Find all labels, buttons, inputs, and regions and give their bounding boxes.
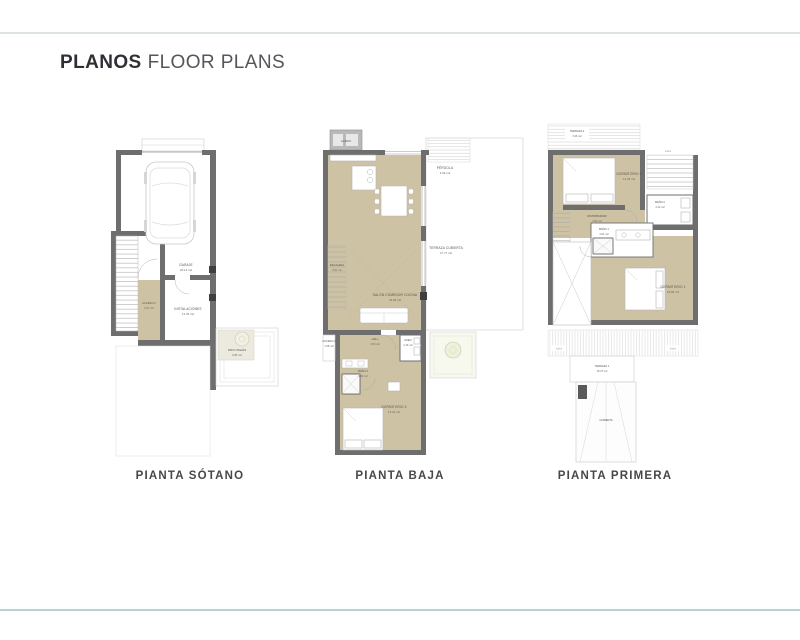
room-area-distribuidor: 4.59 m2 (592, 219, 602, 223)
room-name-garaje: GARAJE (179, 263, 193, 267)
room-name-dormitorio3: DORMITORIO 3 (381, 405, 406, 409)
chimney-icon (578, 385, 587, 399)
bed-icon (563, 158, 615, 204)
shower-icon (342, 374, 360, 394)
room-name-distribuidor: DISTRIBUIDOR (587, 214, 606, 218)
pergola-hatch (428, 138, 470, 162)
cubierta-roof (576, 382, 636, 462)
door-arc-icon (175, 280, 189, 294)
room-area-pergola: 4.09 m2 (440, 171, 451, 175)
driveway-ramp (142, 139, 204, 151)
pillar (420, 292, 427, 300)
toilet-icon (414, 347, 420, 355)
floorplan-baja: LAVADO PÉRGOLA 4.09 m2 ESCALERA 9.51 m2 … (318, 126, 533, 471)
sofa-icon (360, 308, 408, 323)
nightstand-icon (388, 382, 400, 391)
room-name-hall: HALL (372, 337, 379, 341)
stairs-annotation: stairs (556, 347, 563, 351)
pillar (209, 294, 216, 301)
room-area-bano1: 3.64 m2 (599, 232, 609, 236)
room-name-lavado: LAVADO (341, 139, 352, 143)
floorplan-sotano: GARAJE 30.14 m2 ACCESO 2 6.67 m2 INSTALA… (110, 138, 285, 478)
toilet-icon (681, 212, 690, 222)
room-acceso2 (138, 280, 160, 340)
room-area-garaje: 30.14 m2 (180, 268, 192, 272)
top-rule (0, 32, 800, 34)
room-area-patio-ingles: 8.85 m2 (232, 353, 242, 357)
page-title-regular: FLOOR PLANS (148, 52, 285, 73)
room-area-hall: 3.59 m2 (370, 342, 380, 346)
room-name-salon: SALÓN COMEDOR COCINA (373, 292, 418, 297)
exterior-stairs-icon (647, 155, 693, 189)
room-name-acceso1: ACCESO 1 (322, 339, 336, 343)
car-icon (144, 162, 196, 244)
room-area-bano2: 4.13 m2 (655, 205, 665, 209)
caption-pianta-sotano: PIANTA SÓTANO (90, 470, 290, 482)
room-name-terraza2: TERRAZA 2 (570, 129, 585, 133)
stairs-icon (116, 236, 138, 331)
room-bano2 (647, 195, 693, 225)
garden-outline (116, 346, 210, 456)
room-area-terraza1: 15.37 m2 (597, 369, 608, 373)
door-arc-icon (138, 259, 157, 278)
room-area-aseo: 2.16 m2 (403, 343, 413, 347)
room-name-instalaciones: INSTALACIONES (174, 307, 201, 311)
room-name-aseo: ASEO (404, 338, 411, 342)
room-area-dormitorio2: 14.28 m2 (623, 177, 635, 181)
sink-icon (414, 338, 420, 344)
kitchen-counter-icon (330, 155, 376, 161)
terraza2-hatch (548, 124, 640, 150)
room-area-bano3: 3.09 m2 (358, 374, 368, 378)
room-name-cubierta: CUBIERTA (599, 418, 613, 422)
tree-icon (235, 332, 249, 346)
pillar (209, 266, 216, 273)
shower-icon (593, 238, 613, 254)
stairs-icon (328, 245, 346, 309)
room-area-terraza-cubierta: 17.77 m2 (440, 251, 452, 255)
room-area-dormitorio1: 18.85 m2 (667, 290, 679, 294)
bottom-rule (0, 609, 800, 611)
tree-icon (445, 342, 461, 358)
bed-icon (343, 408, 383, 450)
sink-icon (681, 198, 690, 208)
vanity-icon (616, 230, 650, 240)
bed-icon (625, 268, 665, 310)
floor-plans-page: PLANOSFLOOR PLANS (0, 0, 800, 640)
room-area-dormitorio3: 13.36 m2 (388, 410, 400, 414)
stairs-annotation: stairs (665, 149, 672, 153)
room-name-pergola: PÉRGOLA (437, 165, 454, 170)
pergola-band-hatch (548, 330, 698, 356)
garden-square (430, 332, 476, 378)
room-name-escalera: ESCALERA (330, 263, 345, 267)
room-name-terraza-cubierta: TERRAZA CUBIERTA (429, 246, 464, 250)
page-title: PLANOSFLOOR PLANS (60, 52, 285, 74)
room-area-acceso1: 1.68 m2 (324, 344, 334, 348)
caption-pianta-primera: PIANTA PRIMERA (515, 470, 715, 482)
room-name-acceso2: ACCESO 2 (142, 301, 156, 305)
room-area-acceso2: 6.67 m2 (144, 306, 154, 310)
stairs-icon (553, 212, 570, 242)
room-name-dormitorio2: DORMITORIO 2 (616, 172, 641, 176)
porch-acceso1 (323, 335, 335, 361)
room-name-dormitorio1: DORMITORIO 1 (660, 285, 685, 289)
room-name-terraza1: TERRAZA 1 (595, 364, 610, 368)
patio-ingles (216, 328, 278, 386)
kitchen-island-icon (352, 166, 376, 190)
stairs-annotation: stairs (670, 347, 677, 351)
room-area-instalaciones: 14.45 m2 (182, 312, 194, 316)
void-cross (553, 242, 591, 325)
room-area-escalera: 9.51 m2 (332, 268, 342, 272)
room-area-terraza2: 3.36 m2 (572, 134, 582, 138)
terraza1-outline (570, 356, 634, 382)
page-title-bold: PLANOS (60, 52, 142, 73)
room-area-salon: 45.68 m2 (389, 298, 401, 302)
caption-pianta-baja: PIANTA BAJA (300, 470, 500, 482)
floorplan-primera: TERRAZA 2 3.36 m2 DORMITORIO 2 14.28 m2 … (540, 118, 715, 468)
